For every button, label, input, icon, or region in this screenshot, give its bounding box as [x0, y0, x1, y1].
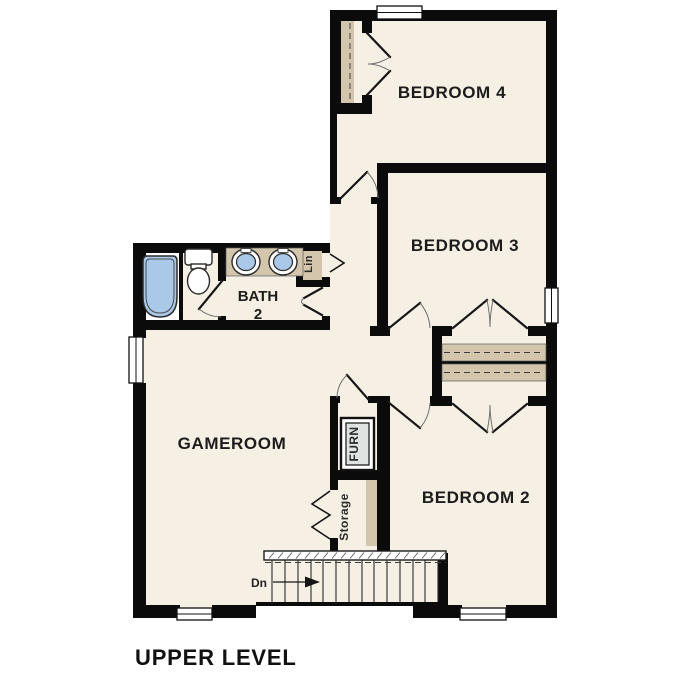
wall-storage-jamb-top [330, 480, 338, 490]
wall-bed3-south-seg [432, 326, 452, 336]
closet4-shelf [341, 21, 354, 103]
bathtub-outline [143, 256, 177, 317]
wall-bed2-north-east [528, 396, 547, 406]
bedroom4-label: BEDROOM 4 [398, 83, 506, 102]
stair-railing [264, 551, 446, 560]
wall-closets-west [432, 336, 442, 398]
wall-hall-west [330, 114, 337, 204]
wall-west-lower [133, 383, 146, 618]
wall-bathdoor-jamb-bottom [322, 316, 330, 330]
wall-closet4-bottom [330, 103, 372, 114]
furnace-label: FURN [347, 427, 361, 462]
faucet-right [278, 249, 288, 253]
wall-bottom-seg1 [133, 605, 180, 618]
storage-shelf [366, 480, 377, 546]
wall-alcove-divider [179, 253, 183, 320]
wall-lin-east-top [322, 243, 330, 253]
stairs-dn-label: Dn [251, 576, 267, 590]
wall-bottom-seg2 [212, 605, 256, 618]
wall-bed3-west [377, 163, 388, 330]
wall-bath-divider [218, 243, 226, 281]
toilet-tank [185, 249, 212, 265]
wall-furn-storage-divider [330, 470, 390, 480]
wall-lin-east-bottom [322, 277, 330, 287]
wall-closet4-jamb-top [362, 21, 372, 33]
wall-bottom-seg4 [506, 605, 557, 618]
floor-plan-page: BEDROOM 4 BEDROOM 3 BEDROOM 2 GAMEROOM B… [0, 0, 687, 687]
wall-closets-divider [442, 361, 546, 364]
wall-furn-west [330, 396, 338, 480]
sink-right-basin [274, 254, 293, 271]
wall-bed3-south-east [528, 326, 547, 336]
window-left [129, 337, 143, 383]
stairwell-open-gap [256, 605, 413, 640]
sink-left-basin [237, 254, 256, 271]
bath-label-line2: 2 [254, 306, 262, 323]
page-title: UPPER LEVEL [135, 645, 297, 670]
wall-closet4-west [330, 10, 341, 114]
window-bottom-right [460, 608, 506, 620]
stair-bottom-edge [256, 602, 448, 606]
bedroom2-label: BEDROOM 2 [422, 488, 530, 507]
faucet-left [241, 249, 251, 253]
wall-bath-bottom [133, 320, 330, 330]
window-bottom-left [177, 608, 212, 620]
gameroom-label: GAMEROOM [178, 434, 287, 453]
floor-plan-drawing: BEDROOM 4 BEDROOM 3 BEDROOM 2 GAMEROOM B… [0, 0, 687, 687]
wall-bed2-north-seg [430, 396, 452, 406]
wall-bottom-seg3 [413, 605, 462, 618]
window-right [545, 288, 558, 323]
linen-label: Lin [303, 255, 315, 273]
window-top [377, 6, 422, 19]
wall-stair-east [438, 553, 448, 605]
wall-bed3-south-foot [370, 326, 390, 336]
wall-hall-door-jamb-left [330, 197, 341, 204]
bedroom3-label: BEDROOM 3 [411, 236, 519, 255]
wall-top [330, 10, 557, 21]
bath-label-line1: BATH [238, 288, 279, 305]
toilet-bowl [188, 268, 210, 294]
wall-bed4-bed3-divider [377, 163, 547, 173]
wall-furn-jamb-right [368, 396, 377, 403]
storage-label: Storage [337, 493, 351, 540]
bathtub-icon [143, 256, 177, 317]
